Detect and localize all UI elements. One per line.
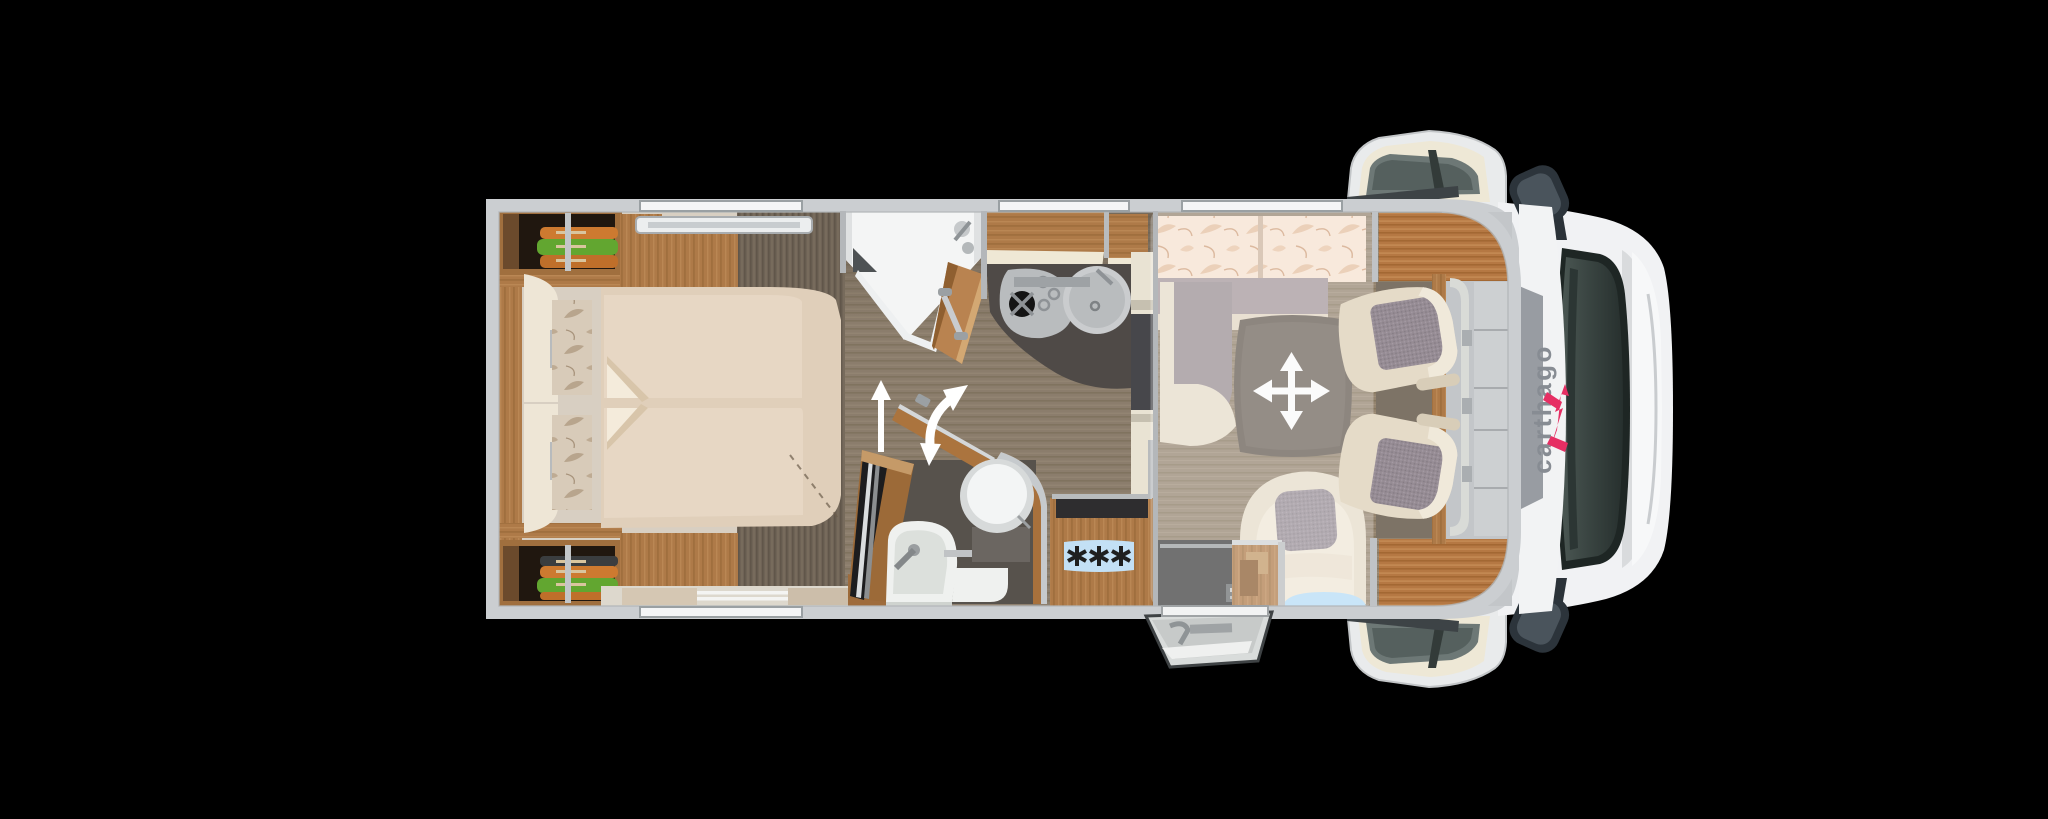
svg-text:carthago: carthago [1527,344,1557,474]
